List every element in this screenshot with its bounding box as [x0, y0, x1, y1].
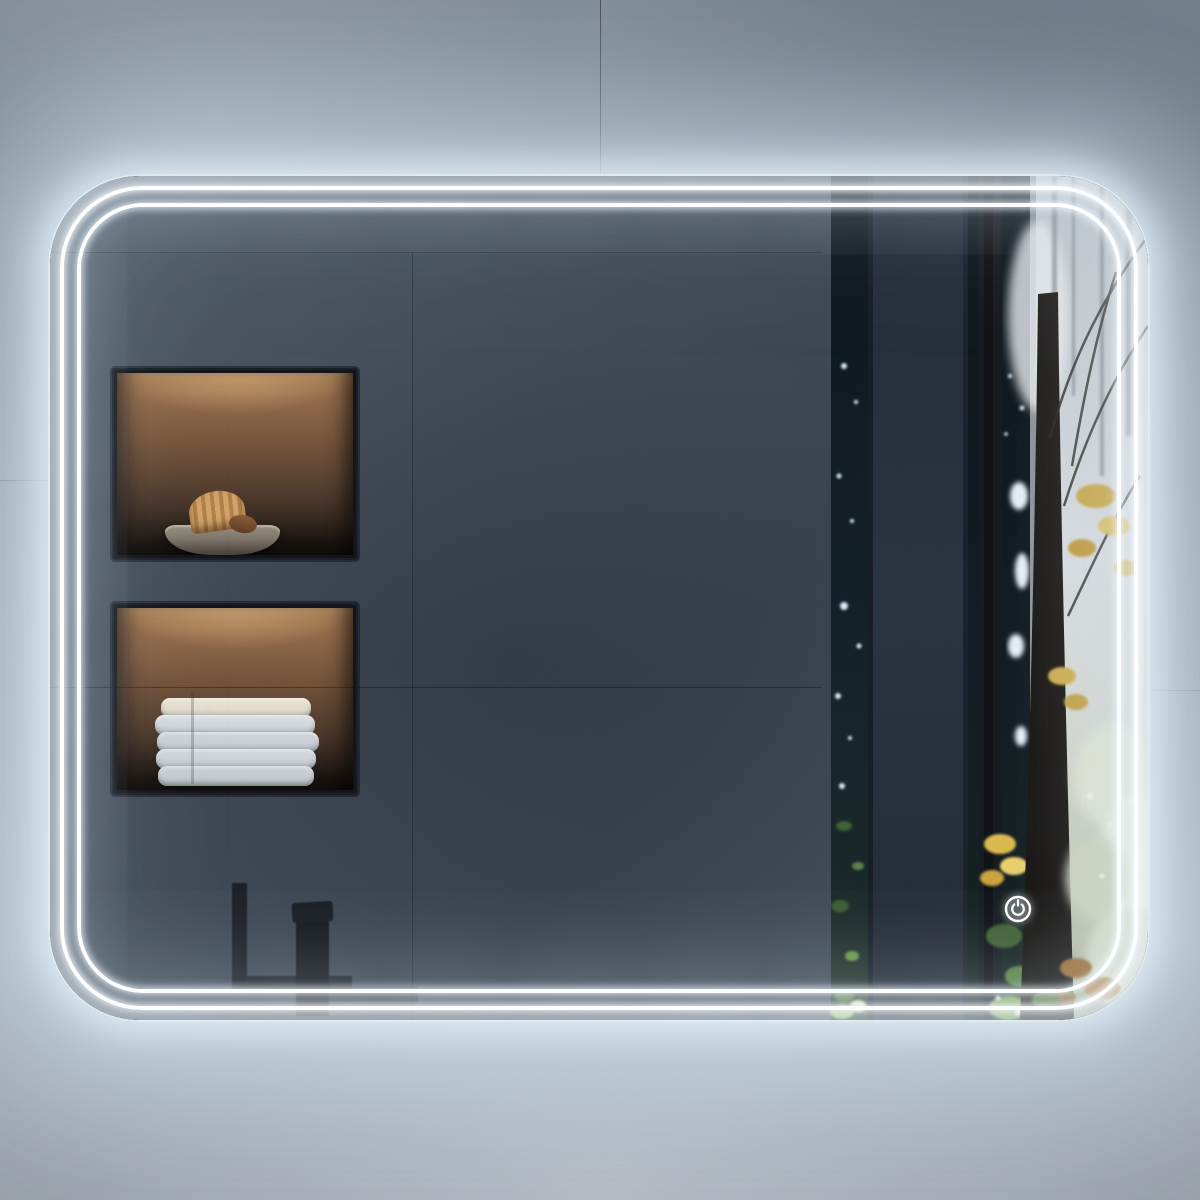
power-touch-button[interactable] — [1001, 892, 1035, 926]
led-mirror — [48, 174, 1150, 1022]
mirror-reflection — [50, 176, 1148, 1020]
power-icon — [1010, 900, 1026, 917]
reflection-texture — [50, 176, 1148, 1020]
scene — [0, 0, 1200, 1200]
